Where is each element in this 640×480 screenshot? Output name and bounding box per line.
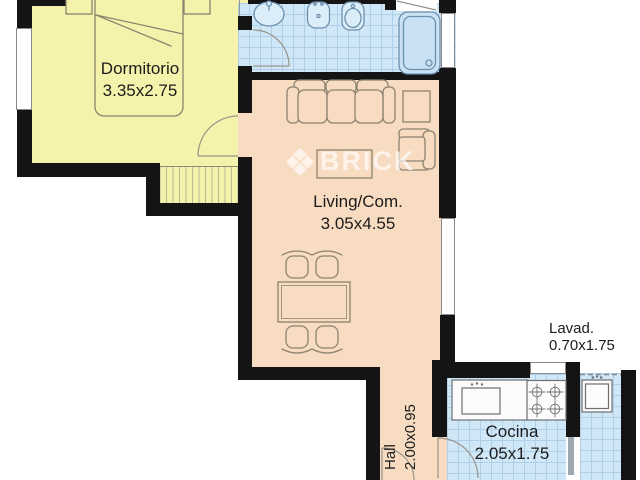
room-name: Living/Com. — [288, 191, 428, 213]
bathtub — [399, 12, 440, 74]
room-dims: 2.00x0.95 — [401, 374, 421, 470]
floor-plan: BRICK Dormitorio 3.35x2.75 Living/Com. 3… — [0, 0, 640, 480]
hall-label: Hall 2.00x0.95 — [381, 374, 421, 470]
laundry-label: Lavad. 0.70x1.75 — [549, 321, 639, 354]
kitchen-label: Cocina 2.05x1.75 — [442, 421, 582, 465]
sink-faucet — [267, 1, 272, 6]
stove — [527, 381, 566, 421]
room-dims: 0.70x1.75 — [549, 338, 639, 355]
sofa-seat — [298, 90, 327, 123]
dining-chair — [316, 256, 338, 278]
sofa-armrest — [383, 87, 395, 123]
room-name: Lavad. — [549, 321, 639, 338]
living-label: Living/Com. 3.05x4.55 — [288, 191, 428, 235]
room-name: Cocina — [442, 421, 582, 443]
room-name: Hall — [381, 374, 401, 470]
dining-chair — [316, 326, 338, 348]
bedroom-label: Dormitorio 3.35x2.75 — [70, 58, 210, 102]
dining-chair — [286, 326, 308, 348]
nightstand-right — [184, 0, 210, 14]
room-dims: 2.05x1.75 — [442, 443, 582, 465]
bathroom-door — [253, 30, 289, 66]
sofa-armrest — [287, 87, 299, 123]
sofa-seat — [355, 90, 383, 123]
dining-table — [278, 282, 350, 322]
room-name: Dormitorio — [70, 58, 210, 80]
side-table — [403, 91, 430, 122]
room-dims: 3.35x2.75 — [70, 80, 210, 102]
room-dims: 3.05x4.55 — [288, 213, 428, 235]
bathroom-top-door-leaf — [397, 1, 436, 10]
brick-logo-icon — [285, 147, 315, 177]
bedroom-door — [198, 116, 238, 156]
laundry-sink — [582, 380, 612, 412]
watermark-text: BRICK — [320, 146, 416, 177]
nightstand-left — [66, 0, 92, 14]
dining-chair — [286, 256, 308, 278]
brick-watermark: BRICK — [285, 146, 416, 177]
sofa-seat — [327, 90, 356, 123]
